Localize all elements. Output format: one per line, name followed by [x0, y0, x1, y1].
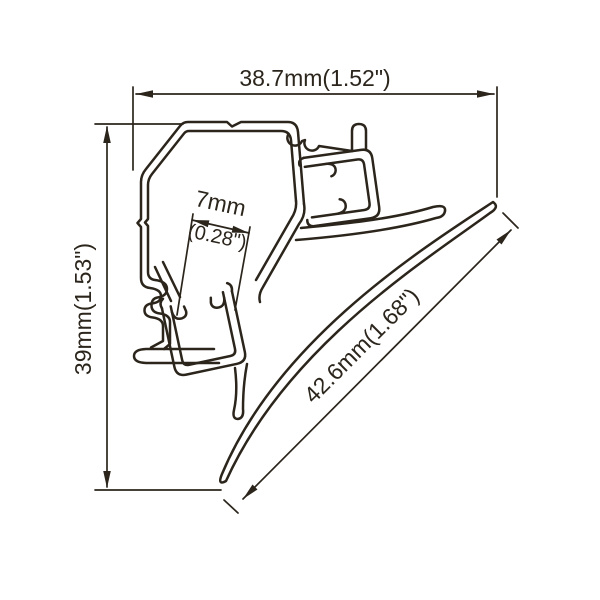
dimension-inner-mm-label: 7mm [193, 185, 248, 221]
profile-outline [134, 122, 496, 482]
arrowhead-left-icon [136, 90, 153, 98]
dim-line [243, 230, 511, 499]
lower-channel-lip-right [227, 282, 232, 292]
arrowhead-up-icon [103, 126, 111, 143]
upper-channel-inner [305, 159, 371, 218]
arrowhead-right-icon [477, 90, 494, 98]
lower-channel-inner [170, 292, 236, 366]
profile-drawing: 38.7mm(1.52") 39mm(1.53") 7mm (0.28") [0, 0, 600, 600]
body-diagonal-wall-outer [259, 204, 304, 302]
upper-channel-hook-top [327, 163, 337, 177]
technical-drawing-canvas: 38.7mm(1.52") 39mm(1.53") 7mm (0.28") [0, 0, 600, 600]
lower-led-channel [159, 282, 247, 376]
dimension-diagonal-label: 42.6mm(1.68") [299, 283, 424, 408]
upper-led-channel [298, 148, 380, 227]
arrowhead-down-icon [103, 471, 111, 488]
finger-tab [352, 124, 366, 151]
dimension-left-label: 39mm(1.53") [70, 243, 96, 375]
upper-channel-outer [304, 148, 381, 226]
lower-strut [234, 364, 248, 419]
screw-port-notches [287, 135, 352, 151]
lower-channel-lip-left [159, 299, 164, 309]
dimension-inner-inch-label: (0.28") [186, 220, 249, 254]
dimension-inner-slot: 7mm (0.28") [177, 185, 250, 315]
dimension-layer: 38.7mm(1.52") 39mm(1.53") 7mm (0.28") [70, 65, 518, 513]
tick-line [224, 500, 238, 513]
lower-channel-hook-right [210, 295, 226, 309]
dimension-top-label: 38.7mm(1.52") [239, 65, 390, 91]
tick-line [503, 213, 518, 228]
